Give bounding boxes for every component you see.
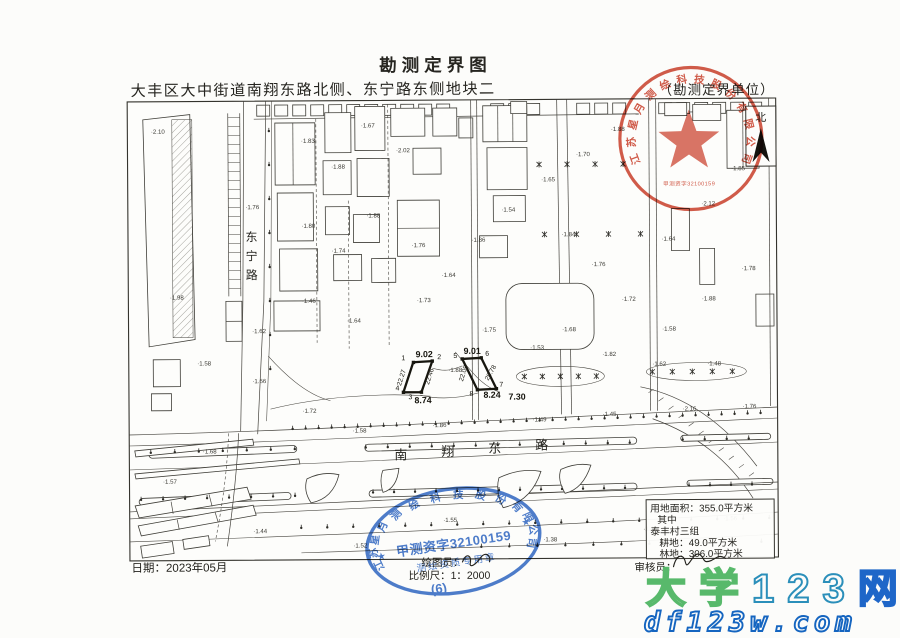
svg-text:·1.54: ·1.54 [501, 207, 516, 214]
svg-text:·1.44: ·1.44 [253, 528, 268, 535]
svg-text:·1.64: ·1.64 [661, 236, 676, 243]
watermark-cn-1: 大学 [646, 567, 752, 611]
svg-text:宁: 宁 [246, 248, 258, 263]
svg-text:·1.88: ·1.88 [611, 126, 626, 133]
svg-text:·1.72: ·1.72 [622, 296, 637, 303]
parcel-right-corner-6: 6 [485, 351, 489, 358]
svg-text:·1.88: ·1.88 [702, 295, 717, 302]
svg-text:·1.76: ·1.76 [245, 204, 260, 211]
date-label: 日期：2023年05月 [131, 560, 227, 575]
svg-text:·1.73: ·1.73 [417, 297, 432, 304]
svg-text:·1.75: ·1.75 [482, 327, 497, 334]
svg-text:·1.72: ·1.72 [303, 408, 318, 415]
svg-text:·1.86: ·1.86 [433, 422, 448, 429]
watermark-url: df123w.com [644, 607, 857, 638]
sheet-subtitle: 大丰区大中街道南翔东路北侧、东宁路东侧地块二 [131, 81, 496, 100]
svg-text:·1.74: ·1.74 [332, 248, 347, 255]
svg-text:南: 南 [394, 447, 407, 462]
parcel-left-corner-1: 1 [401, 355, 405, 362]
pond [506, 283, 594, 350]
svg-text:·1.67: ·1.67 [361, 122, 376, 129]
svg-text:·1.58: ·1.58 [197, 360, 212, 367]
svg-text:·1.76: ·1.76 [743, 403, 758, 410]
svg-text:·1.68: ·1.68 [203, 448, 218, 455]
watermark: 大学123网 df123w.com [644, 567, 900, 638]
svg-text:·1.58: ·1.58 [353, 428, 368, 435]
svg-text:·1.38: ·1.38 [543, 536, 558, 543]
svg-text:·1.68: ·1.68 [562, 326, 577, 333]
sheet-number: (6) [430, 580, 448, 597]
svg-text:·1.49: ·1.49 [533, 416, 548, 423]
info-village: 泰丰村三组 [650, 524, 699, 537]
info-among: 其中 [657, 513, 677, 526]
svg-text:·1.76: ·1.76 [412, 242, 427, 249]
svg-text:科: 科 [676, 72, 689, 87]
survey-map-svg: 勘测定界图 大丰区大中街道南翔东路北侧、东宁路东侧地块二 （勘测定界单位） 东宁… [0, 0, 900, 638]
svg-text:技: 技 [453, 488, 464, 501]
info-area: 用地面积：355.0平方米 [650, 501, 753, 515]
parcel-left-corner-2: 2 [437, 354, 441, 361]
parcel-left-bottom-elev: 8.74 [414, 395, 431, 405]
svg-text:·1.78: ·1.78 [742, 265, 757, 272]
svg-text:公: 公 [744, 136, 757, 148]
svg-text:苏: 苏 [625, 136, 639, 148]
svg-text:翔: 翔 [441, 444, 454, 459]
svg-text:·1.80: ·1.80 [301, 223, 316, 230]
svg-text:·1.53: ·1.53 [530, 344, 545, 351]
scanned-survey-sheet: 勘测定界图 大丰区大中街道南翔东路北侧、东宁路东侧地块二 （勘测定界单位） 东宁… [0, 0, 900, 638]
parcel-left-corner-3: 3 [408, 394, 412, 401]
svg-text:·1.98: ·1.98 [170, 295, 185, 302]
sheet-title: 勘测定界图 [379, 55, 492, 76]
road-dongning-label: 东宁路 [245, 230, 257, 282]
svg-text:·1.57: ·1.57 [163, 479, 178, 486]
parcel-right-corner-5: 5 [453, 353, 457, 360]
info-farmland: 耕地：49.0平方米 [659, 536, 737, 549]
parcel-right-corner-8: 8 [470, 391, 474, 398]
svg-text:司: 司 [524, 537, 537, 549]
svg-text:·1.86: ·1.86 [471, 237, 486, 244]
svg-text:大学123网: 大学123网 [646, 567, 900, 611]
parcel-right-bottom-elev: 8.24 [483, 390, 500, 400]
svg-text:·1.48: ·1.48 [707, 360, 722, 367]
svg-text:·1.45: ·1.45 [603, 411, 618, 418]
svg-text:·1.65: ·1.65 [541, 176, 556, 183]
parcel-left-top-elev: 9.02 [416, 349, 433, 359]
svg-text:星: 星 [369, 533, 382, 545]
svg-text:·1.62: ·1.62 [252, 328, 267, 335]
svg-text:东: 东 [488, 441, 501, 456]
svg-text:·1.88: ·1.88 [366, 212, 381, 219]
svg-text:·1.58: ·1.58 [662, 326, 677, 333]
parcel-right-top-elev: 9.01 [464, 346, 481, 356]
svg-text:·1.88: ·1.88 [331, 164, 346, 171]
parcel-right-spot: 7.30 [508, 392, 525, 402]
svg-text:·1.46: ·1.46 [302, 298, 317, 305]
svg-text:·1.85: ·1.85 [731, 165, 746, 172]
info-forest: 林地：306.0平方米 [659, 547, 743, 561]
svg-text:东: 东 [245, 230, 257, 244]
svg-text:·1.70: ·1.70 [576, 151, 591, 158]
svg-text:·2.16: ·2.16 [683, 405, 698, 412]
svg-text:·1.76: ·1.76 [592, 261, 607, 268]
svg-text:·1.62: ·1.62 [652, 361, 667, 368]
svg-text:公: 公 [526, 524, 539, 537]
svg-text:·1.83: ·1.83 [301, 138, 316, 145]
watermark-cn-3: 网 [858, 567, 900, 611]
svg-text:路: 路 [246, 267, 258, 282]
svg-text:·2.02: ·2.02 [396, 147, 411, 154]
land-info-box: 用地面积：355.0平方米 其中 泰丰村三组 耕地：49.0平方米 林地：306… [646, 499, 774, 560]
svg-text:·1.84: ·1.84 [561, 231, 576, 238]
drafter-label: 绘图员： [421, 556, 463, 569]
parcel-right-corner-7: 7 [499, 382, 503, 389]
svg-text:·1.64: ·1.64 [347, 318, 362, 325]
svg-text:·1.64: ·1.64 [442, 272, 457, 279]
svg-text:·1.55: ·1.55 [443, 517, 458, 524]
svg-text:·1.82: ·1.82 [602, 351, 617, 358]
svg-text:·1.66: ·1.66 [252, 378, 267, 385]
scale-label: 比例尺：1：2000 [409, 569, 491, 582]
svg-text:·2.10: ·2.10 [151, 129, 166, 136]
watermark-cn-2: 123 [752, 567, 858, 611]
